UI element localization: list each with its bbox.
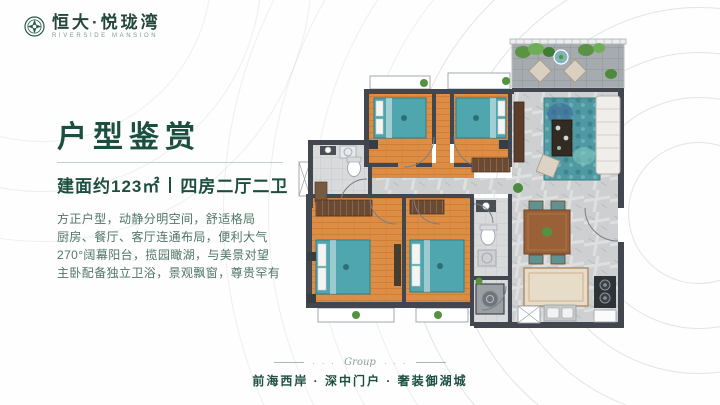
- kitchen: [518, 268, 616, 323]
- hall-cabinet: [472, 158, 510, 172]
- plant-icon: [542, 227, 552, 237]
- footer-tagline: 前海西岸 · 深中门户 · 奢装御湖城: [0, 372, 720, 389]
- description-line: 厨房、餐厅、客厅连通布局，便利大气: [57, 228, 295, 246]
- balcony: [510, 39, 626, 88]
- divider-script-word: Group: [344, 357, 376, 368]
- floor-plan: [298, 36, 648, 350]
- brand-name: 恒大·悦珑湾: [52, 13, 161, 32]
- divider-dots: · · ·: [312, 358, 336, 368]
- area-label: 建面约123㎡: [57, 172, 160, 197]
- unit-spec: 建面约123㎡ 四房二厅二卫: [57, 172, 295, 197]
- description-line: 270°阔幕阳台，揽园瞰湖，与美景对望: [57, 246, 295, 264]
- title-underline: [57, 162, 283, 163]
- divider-line: [416, 362, 446, 363]
- description-line: 主卧配备独立卫浴，景观飘窗，尊贵罕有: [57, 264, 295, 282]
- medallion-icon: [24, 16, 45, 37]
- brand-logo: 恒大·悦珑湾 RIVERSIDE MANSION: [24, 13, 161, 39]
- brand-name-en: RIVERSIDE MANSION: [52, 33, 161, 39]
- footer-divider: · · · Group · · ·: [0, 357, 720, 368]
- divider-line: [274, 362, 304, 363]
- spec-divider: [169, 177, 171, 193]
- page-title: 户型鉴赏: [57, 121, 295, 155]
- description: 方正户型，动静分明空间，舒适格局 厨房、餐厅、客厅连通布局，便利大气 270°阔…: [57, 210, 295, 282]
- description-line: 方正户型，动静分明空间，舒适格局: [57, 210, 295, 228]
- bench: [394, 244, 401, 286]
- floor-plan-drawing: [298, 36, 648, 350]
- info-panel: 户型鉴赏 建面约123㎡ 四房二厅二卫 方正户型，动静分明空间，舒适格局 厨房、…: [57, 121, 295, 282]
- coffee-table: [552, 120, 572, 156]
- kitchen-island: [524, 268, 588, 306]
- wardrobe: [316, 200, 372, 216]
- plant-icon: [513, 183, 523, 193]
- layout-label: 四房二厅二卫: [180, 172, 288, 197]
- divider-dots: · · ·: [384, 358, 408, 368]
- tv-cabinet: [514, 102, 524, 162]
